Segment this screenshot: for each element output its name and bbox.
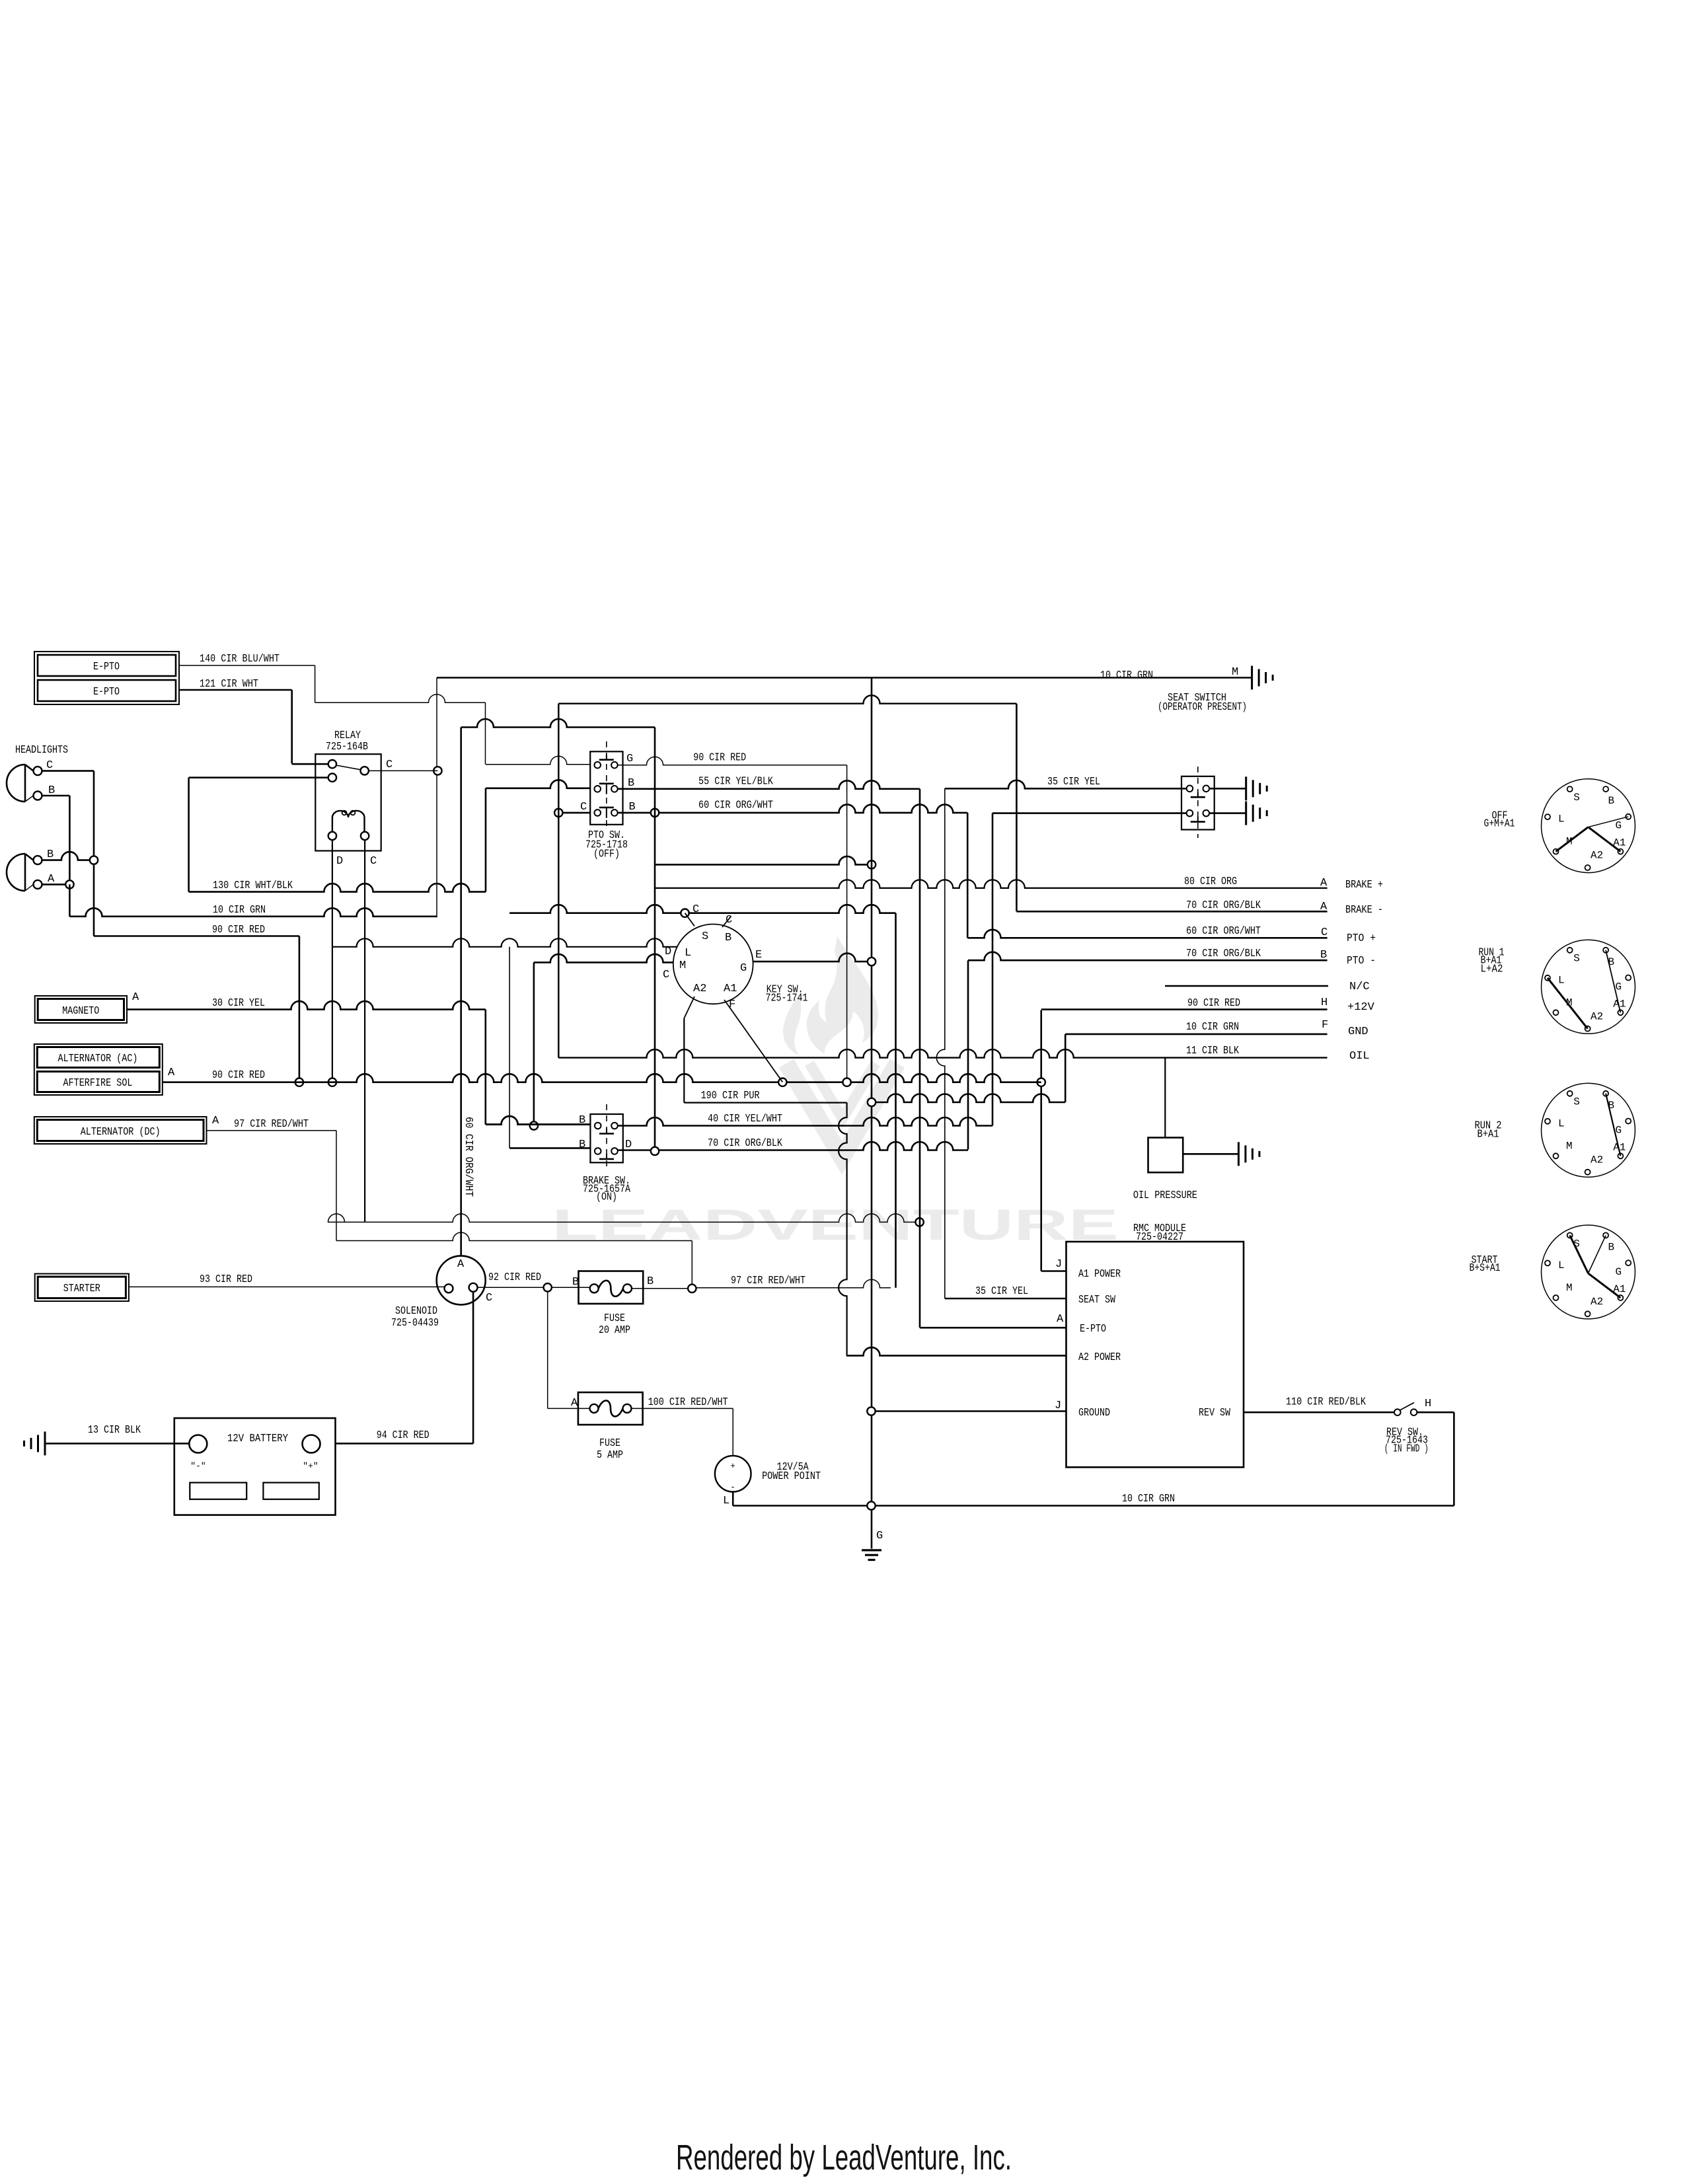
svg-text:E: E: [755, 949, 762, 961]
svg-text:90 CIR RED: 90 CIR RED: [212, 1069, 265, 1082]
svg-text:A2: A2: [1591, 1010, 1603, 1022]
svg-text:13 CIR BLK: 13 CIR BLK: [88, 1424, 141, 1437]
svg-text:A: A: [457, 1258, 465, 1271]
svg-text:725-04227: 725-04227: [1136, 1231, 1183, 1244]
svg-text:B: B: [647, 1275, 654, 1288]
svg-text:D: D: [665, 946, 671, 958]
svg-text:(OPERATOR PRESENT): (OPERATOR PRESENT): [1158, 701, 1247, 714]
svg-text:B+A1: B+A1: [1478, 1128, 1499, 1141]
svg-text:94 CIR RED: 94 CIR RED: [377, 1429, 430, 1442]
svg-text:D: D: [336, 855, 343, 868]
svg-text:C: C: [663, 969, 669, 981]
svg-text:SEAT SW: SEAT SW: [1078, 1294, 1116, 1306]
svg-text:PTO +: PTO +: [1347, 932, 1376, 945]
svg-text:B: B: [629, 801, 636, 813]
svg-text:100 CIR RED/WHT: 100 CIR RED/WHT: [648, 1396, 728, 1409]
svg-text:GND: GND: [1348, 1026, 1368, 1038]
svg-text:N/C: N/C: [1349, 981, 1370, 993]
svg-text:97 CIR RED/WHT: 97 CIR RED/WHT: [731, 1275, 805, 1287]
svg-text:M: M: [1232, 666, 1238, 679]
svg-text:STARTER: STARTER: [63, 1283, 100, 1295]
svg-text:B+S+A1: B+S+A1: [1470, 1262, 1501, 1275]
svg-text:D: D: [625, 1139, 632, 1151]
svg-text:L: L: [685, 947, 691, 960]
svg-text:G: G: [626, 753, 633, 765]
svg-text:MAGNETO: MAGNETO: [62, 1005, 99, 1018]
svg-text:L: L: [1558, 1117, 1565, 1129]
svg-text:G: G: [1616, 981, 1622, 993]
svg-text:E-PTO: E-PTO: [1080, 1323, 1106, 1336]
svg-text:A2 POWER: A2 POWER: [1078, 1351, 1121, 1364]
svg-text:70 CIR ORG/BLK: 70 CIR ORG/BLK: [1186, 948, 1261, 960]
svg-text:725-1741: 725-1741: [766, 993, 808, 1005]
svg-text:FUSE: FUSE: [604, 1312, 625, 1325]
svg-text:B: B: [47, 848, 54, 861]
svg-text:A1: A1: [724, 983, 737, 995]
svg-text:121 CIR WHT: 121 CIR WHT: [200, 678, 258, 691]
svg-text:10 CIR GRN: 10 CIR GRN: [1122, 1493, 1175, 1505]
svg-text:90 CIR RED: 90 CIR RED: [1187, 997, 1240, 1010]
svg-text:10 CIR GRN: 10 CIR GRN: [1100, 669, 1153, 682]
svg-text:A2: A2: [693, 983, 706, 995]
svg-text:B: B: [48, 784, 55, 797]
svg-text:F: F: [1322, 1019, 1328, 1032]
svg-text:A: A: [212, 1115, 219, 1127]
svg-text:SOLENOID: SOLENOID: [395, 1305, 437, 1318]
svg-text:B: B: [1608, 795, 1615, 807]
svg-text:(ON): (ON): [596, 1191, 617, 1203]
svg-text:B: B: [579, 1114, 585, 1127]
svg-text:60 CIR ORG/WHT: 60 CIR ORG/WHT: [462, 1117, 474, 1197]
svg-text:M: M: [1566, 1282, 1573, 1294]
svg-text:B: B: [628, 777, 634, 790]
svg-text:ALTERNATOR (AC): ALTERNATOR (AC): [58, 1053, 138, 1065]
svg-text:A: A: [48, 873, 55, 885]
svg-text:C: C: [486, 1292, 492, 1304]
svg-text:L: L: [1558, 813, 1565, 825]
svg-text:B: B: [725, 932, 731, 944]
svg-text:55 CIR YEL/BLK: 55 CIR YEL/BLK: [698, 776, 774, 788]
svg-text:30 CIR YEL: 30 CIR YEL: [212, 997, 265, 1010]
svg-text:40 CIR YEL/WHT: 40 CIR YEL/WHT: [708, 1113, 782, 1125]
svg-text:A: A: [1057, 1313, 1064, 1326]
svg-text:A: A: [1320, 877, 1328, 889]
svg-text:J: J: [1055, 1258, 1062, 1271]
svg-text:92 CIR RED: 92 CIR RED: [488, 1271, 541, 1284]
svg-text:C: C: [1321, 926, 1328, 939]
svg-text:C: C: [580, 801, 587, 813]
svg-text:35 CIR YEL: 35 CIR YEL: [975, 1285, 1028, 1298]
svg-text:G: G: [1616, 1124, 1622, 1136]
svg-text:B: B: [1608, 1241, 1615, 1253]
svg-text:( IN FWD ): ( IN FWD ): [1384, 1443, 1429, 1455]
svg-text:FUSE: FUSE: [599, 1437, 620, 1450]
svg-text:REV SW: REV SW: [1199, 1407, 1231, 1419]
svg-text:M: M: [679, 960, 686, 972]
svg-text:BRAKE +: BRAKE +: [1345, 879, 1383, 891]
svg-text:12V BATTERY: 12V BATTERY: [227, 1433, 288, 1445]
svg-text:E-PTO: E-PTO: [93, 661, 120, 673]
svg-text:60 CIR ORG/WHT: 60 CIR ORG/WHT: [1186, 925, 1261, 938]
svg-text:Rendered by LeadVenture, Inc.: Rendered by LeadVenture, Inc.: [676, 2138, 1012, 2177]
svg-text:725-04439: 725-04439: [391, 1317, 439, 1330]
svg-text:S: S: [1573, 1096, 1580, 1108]
svg-text:HEADLIGHTS: HEADLIGHTS: [15, 744, 68, 757]
svg-text:+: +: [730, 1461, 735, 1471]
svg-text:S: S: [1573, 953, 1580, 965]
svg-text:725-164B: 725-164B: [326, 741, 368, 753]
svg-text:C: C: [46, 759, 53, 772]
svg-text:A: A: [571, 1397, 578, 1410]
svg-text:A: A: [168, 1067, 175, 1079]
svg-text:20 AMP: 20 AMP: [599, 1324, 630, 1337]
svg-text:G: G: [1616, 1266, 1622, 1278]
svg-text:90 CIR RED: 90 CIR RED: [212, 924, 265, 936]
svg-text:10 CIR GRN: 10 CIR GRN: [1186, 1021, 1239, 1034]
svg-text:G: G: [740, 962, 747, 975]
svg-text:A: A: [1320, 901, 1328, 913]
svg-text:H: H: [1321, 997, 1328, 1009]
svg-text:GROUND: GROUND: [1078, 1407, 1110, 1419]
svg-text:A1 POWER: A1 POWER: [1078, 1268, 1121, 1281]
svg-text:35 CIR YEL: 35 CIR YEL: [1047, 776, 1100, 788]
svg-text:A2: A2: [1591, 850, 1603, 862]
svg-text:G: G: [876, 1530, 883, 1542]
svg-text:B: B: [1320, 949, 1327, 961]
svg-text:L: L: [1558, 974, 1565, 986]
svg-text:PTO -: PTO -: [1347, 955, 1376, 967]
svg-text:80 CIR ORG: 80 CIR ORG: [1184, 876, 1237, 888]
svg-text:A2: A2: [1591, 1154, 1603, 1166]
svg-text:(OFF): (OFF): [593, 848, 620, 861]
svg-text:C: C: [386, 759, 393, 771]
svg-text:C: C: [726, 914, 732, 926]
svg-text:C: C: [693, 903, 699, 916]
svg-text:S: S: [1573, 792, 1580, 804]
svg-text:5 AMP: 5 AMP: [597, 1449, 623, 1462]
svg-text:90 CIR RED: 90 CIR RED: [693, 752, 746, 765]
svg-text:G+M+A1: G+M+A1: [1484, 818, 1515, 831]
svg-text:L: L: [723, 1495, 730, 1507]
svg-text:"+": "+": [303, 1461, 318, 1471]
svg-text:L: L: [1558, 1260, 1565, 1271]
svg-text:E-PTO: E-PTO: [93, 686, 120, 698]
svg-text:190 CIR PUR: 190 CIR PUR: [701, 1090, 760, 1102]
svg-text:10 CIR GRN: 10 CIR GRN: [213, 904, 266, 917]
svg-text:140 CIR BLU/WHT: 140 CIR BLU/WHT: [200, 653, 280, 665]
svg-text:110 CIR RED/BLK: 110 CIR RED/BLK: [1286, 1396, 1367, 1409]
svg-text:60 CIR ORG/WHT: 60 CIR ORG/WHT: [698, 800, 773, 812]
svg-text:F: F: [729, 998, 735, 1011]
svg-text:11 CIR BLK: 11 CIR BLK: [1186, 1045, 1240, 1057]
svg-text:LEADVENTURE: LEADVENTURE: [552, 1200, 1119, 1249]
svg-text:130 CIR WHT/BLK: 130 CIR WHT/BLK: [213, 880, 293, 892]
svg-text:BRAKE -: BRAKE -: [1345, 904, 1383, 917]
svg-text:H: H: [1425, 1398, 1431, 1410]
svg-text:93 CIR RED: 93 CIR RED: [200, 1273, 252, 1286]
svg-text:70 CIR ORG/BLK: 70 CIR ORG/BLK: [708, 1137, 783, 1150]
svg-text:97 CIR RED/WHT: 97 CIR RED/WHT: [234, 1118, 309, 1131]
svg-text:"-": "-": [190, 1461, 206, 1471]
svg-text:-: -: [730, 1482, 735, 1492]
svg-text:L+A2: L+A2: [1481, 963, 1503, 975]
svg-text:+12V: +12V: [1347, 1001, 1375, 1014]
svg-text:S: S: [702, 930, 708, 943]
svg-text:POWER POINT: POWER POINT: [762, 1470, 821, 1483]
svg-text:OIL PRESSURE: OIL PRESSURE: [1133, 1189, 1197, 1202]
svg-text:B: B: [579, 1139, 585, 1151]
svg-text:70 CIR ORG/BLK: 70 CIR ORG/BLK: [1186, 899, 1261, 912]
svg-text:AFTERFIRE SOL: AFTERFIRE SOL: [63, 1077, 133, 1090]
svg-text:ALTERNATOR (DC): ALTERNATOR (DC): [81, 1126, 161, 1139]
svg-text:M: M: [1566, 1140, 1573, 1152]
svg-text:B: B: [572, 1276, 579, 1289]
svg-text:OIL: OIL: [1349, 1050, 1370, 1063]
svg-text:A: A: [132, 991, 139, 1004]
svg-text:G: G: [1616, 820, 1622, 832]
svg-text:C: C: [370, 855, 377, 868]
svg-text:J: J: [1055, 1400, 1061, 1412]
svg-text:A2: A2: [1591, 1296, 1603, 1308]
